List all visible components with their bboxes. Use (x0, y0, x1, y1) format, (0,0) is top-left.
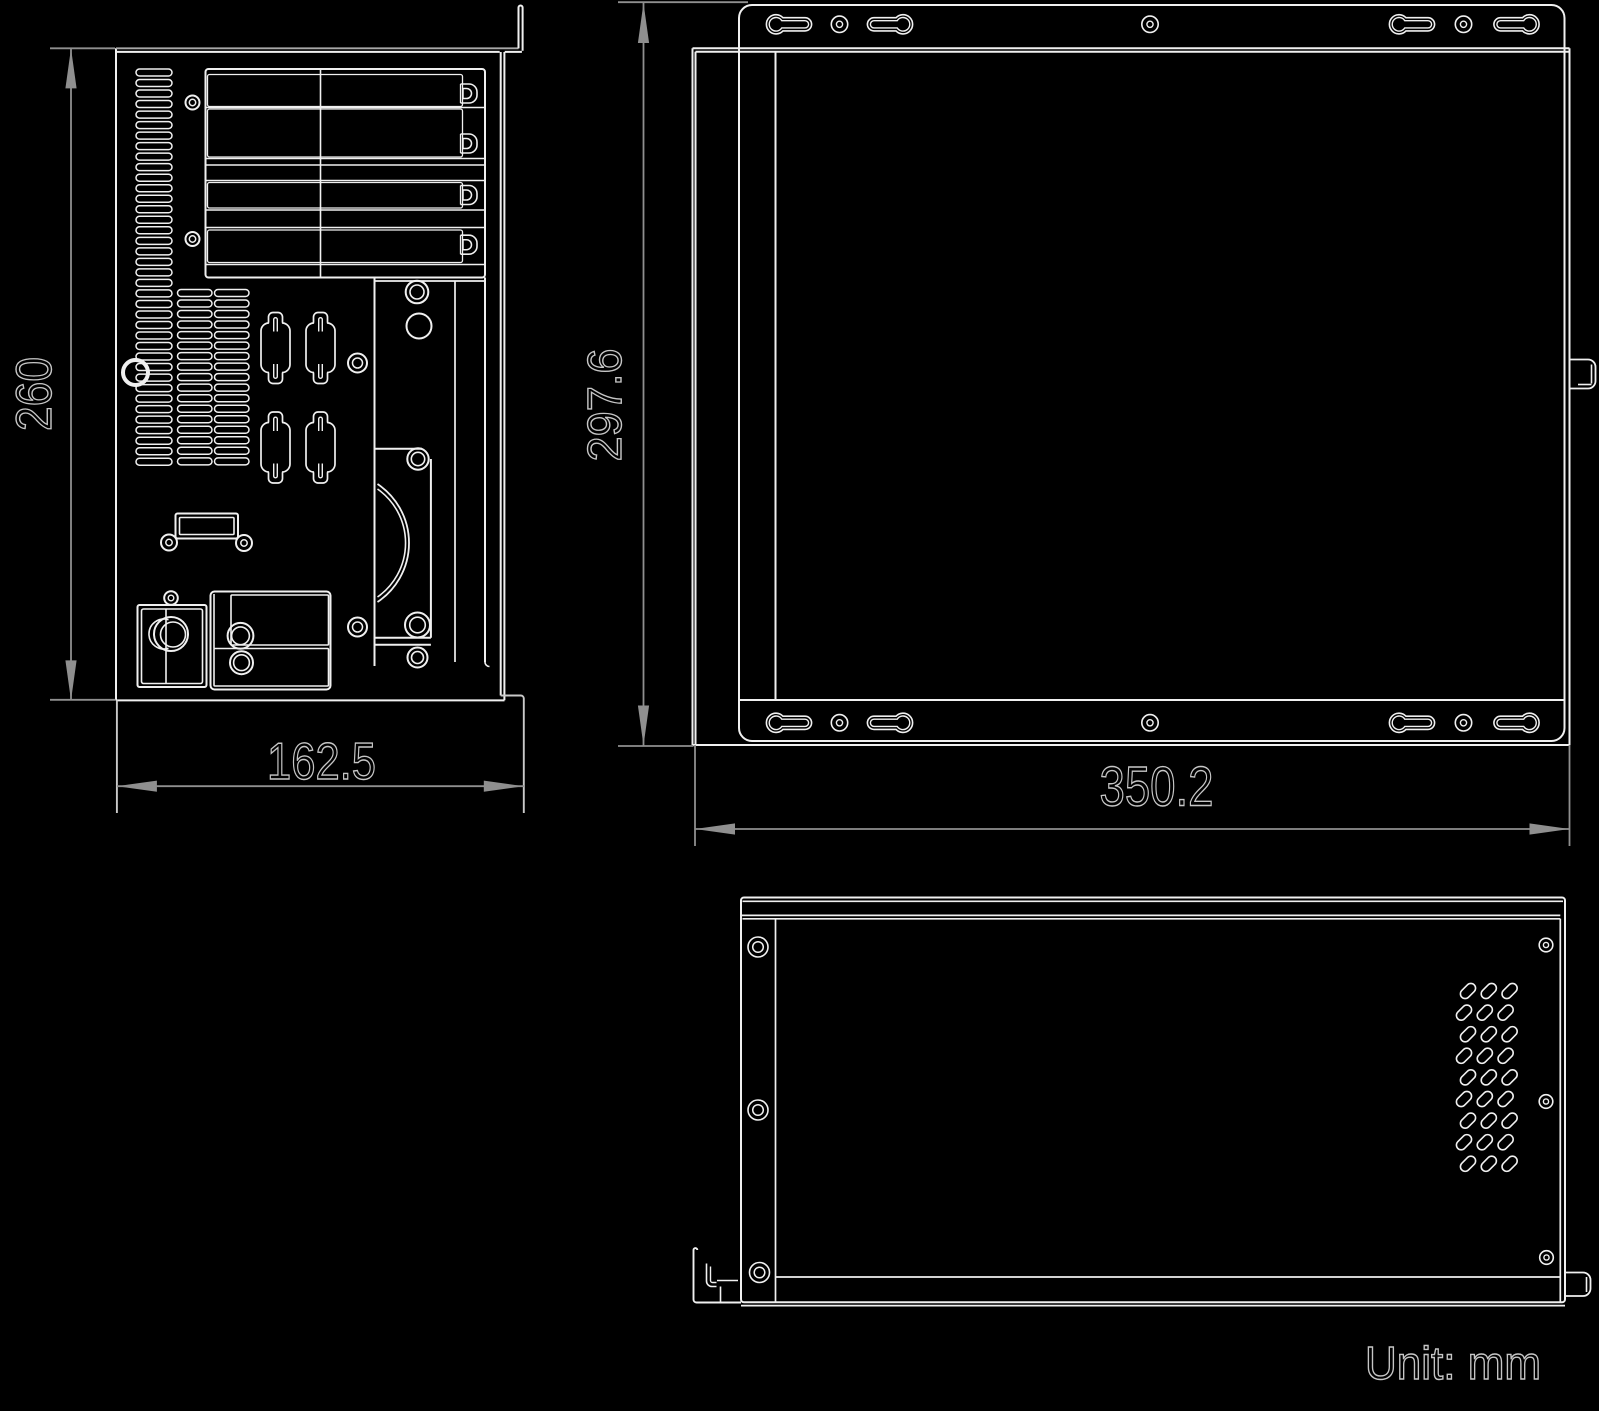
svg-text:162.5: 162.5 (267, 733, 376, 791)
svg-text:Unit: mm: Unit: mm (1365, 1337, 1541, 1389)
svg-text:297.6: 297.6 (579, 349, 632, 462)
svg-text:260: 260 (6, 357, 62, 431)
svg-text:350.2: 350.2 (1100, 755, 1214, 818)
